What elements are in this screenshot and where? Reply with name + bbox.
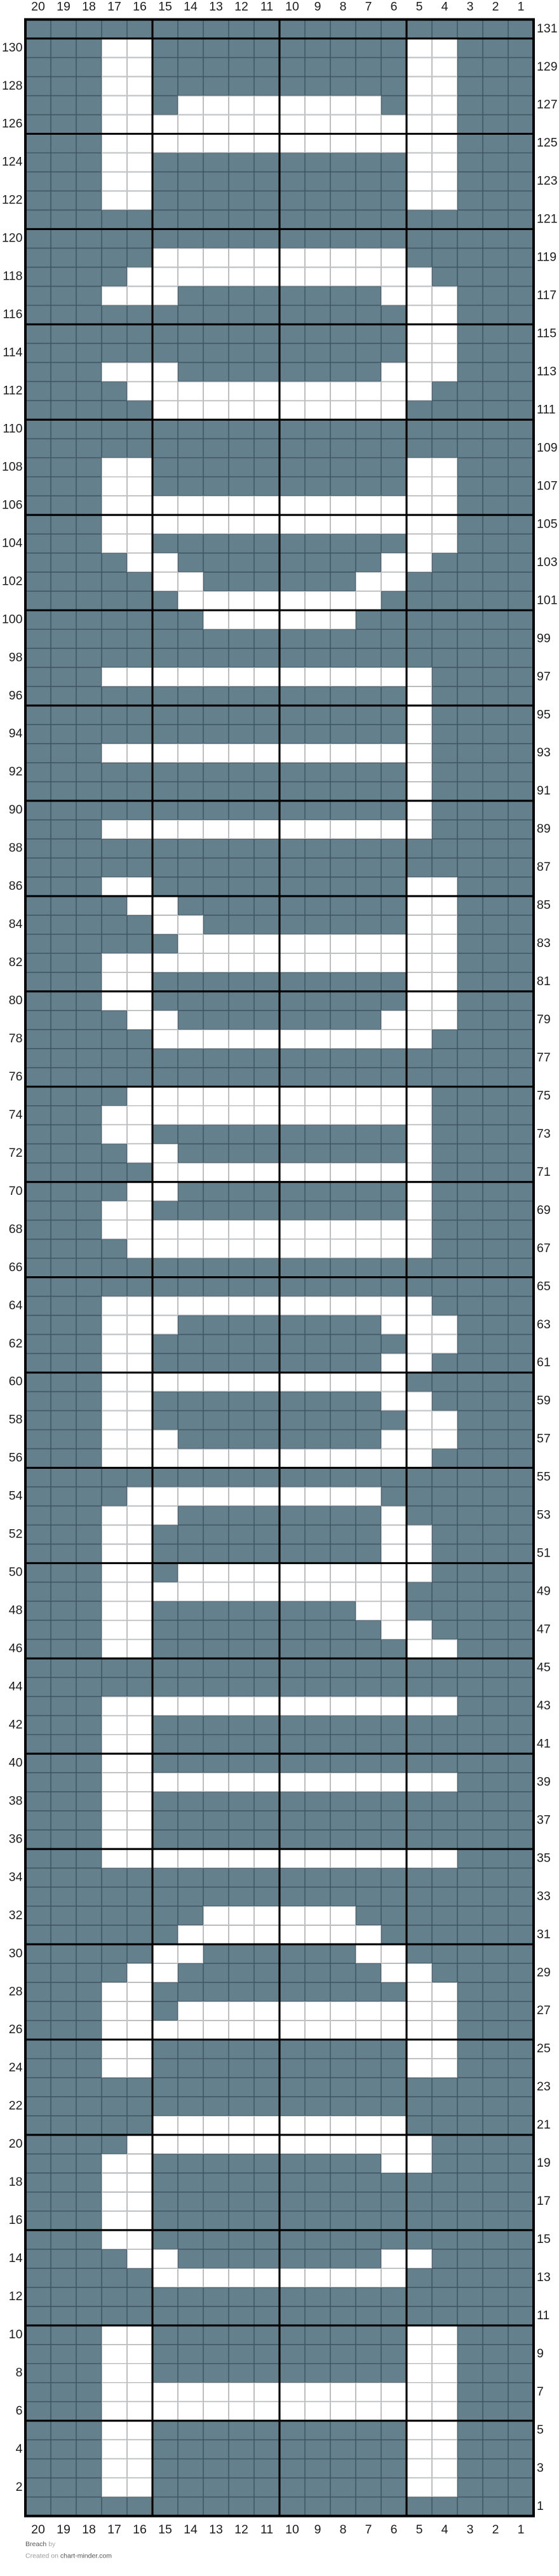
svg-text:Breach by: Breach by <box>25 2540 56 2548</box>
svg-text:Created on chart-minder.com: Created on chart-minder.com <box>25 2552 112 2560</box>
